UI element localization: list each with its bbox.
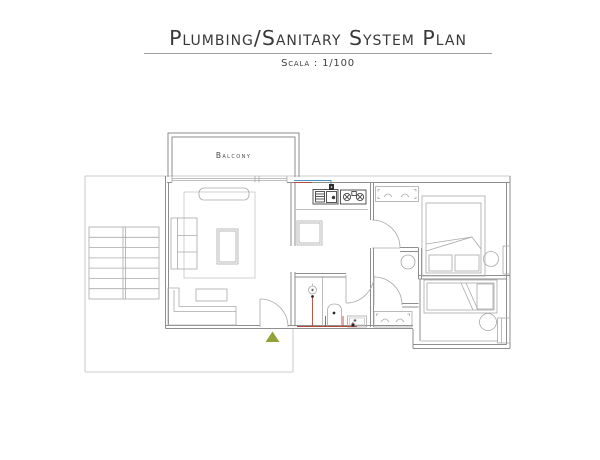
toilet-icon <box>328 304 342 327</box>
shower-head-icon <box>309 284 317 295</box>
master-bedroom-door <box>372 220 400 248</box>
washbasin-icon <box>348 316 367 327</box>
stairs <box>89 227 159 299</box>
rug <box>184 192 255 278</box>
closets <box>374 187 419 328</box>
bedrooms <box>401 196 499 331</box>
coffee-table <box>217 229 238 264</box>
kitchen-sink-icon <box>313 190 338 205</box>
pipe-connection-points <box>311 295 354 326</box>
stool <box>480 314 497 331</box>
refrigerator-icon <box>297 221 322 245</box>
nightstand-right <box>484 252 499 267</box>
living-room-furniture <box>168 188 255 325</box>
second-bedroom-door <box>374 277 402 305</box>
balcony-label: Balcony <box>216 151 251 160</box>
second-bedroom-window <box>498 318 511 343</box>
kitchen <box>296 190 368 246</box>
hall-closet <box>376 187 419 202</box>
entry-door <box>260 299 288 327</box>
sink-valve-dot <box>331 186 333 188</box>
entrance-marker <box>266 332 280 343</box>
bathroom-door <box>346 275 374 303</box>
ottoman <box>196 289 227 301</box>
tv-console <box>199 188 249 200</box>
double-bed <box>422 196 485 276</box>
bathroom <box>309 284 367 328</box>
stove-icon <box>341 190 367 204</box>
corner-sofa <box>168 288 236 325</box>
bath-closet <box>374 312 412 328</box>
windows <box>172 176 510 343</box>
nightstand-left <box>401 255 415 269</box>
single-bed <box>424 280 497 313</box>
floor-plan: Balcony <box>0 0 600 460</box>
drawing-sheet: Plumbing/Sanitary System Plan Scala : 1/… <box>0 0 600 460</box>
